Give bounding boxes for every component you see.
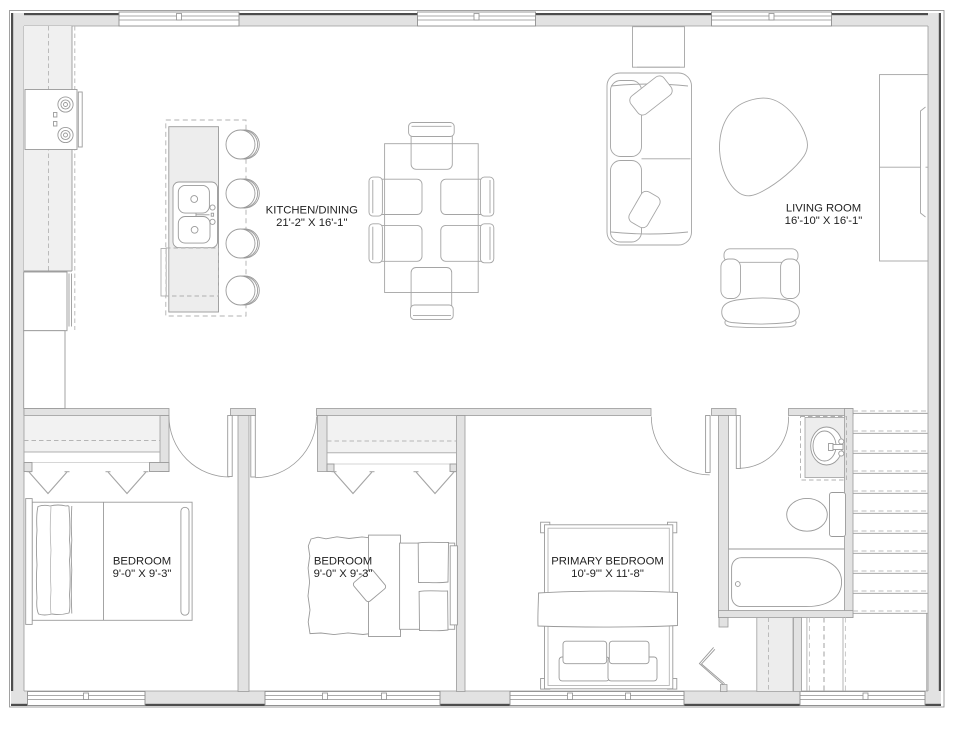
svg-text:BEDROOM: BEDROOM	[113, 556, 171, 568]
svg-text:16'-10" X 16'-1": 16'-10" X 16'-1"	[785, 215, 863, 227]
svg-text:9'-0" X 9'-3": 9'-0" X 9'-3"	[113, 568, 172, 580]
svg-text:KITCHEN/DINING: KITCHEN/DINING	[266, 204, 358, 216]
svg-text:9'-0" X 9'-3": 9'-0" X 9'-3"	[314, 568, 373, 580]
svg-text:BEDROOM: BEDROOM	[314, 556, 372, 568]
svg-text:21'-2" X 16'-1": 21'-2" X 16'-1"	[276, 217, 347, 229]
svg-text:LIVING ROOM: LIVING ROOM	[786, 203, 861, 215]
svg-text:10'-9"' X 11'-8": 10'-9"' X 11'-8"	[571, 568, 644, 580]
svg-text:PRIMARY BEDROOM: PRIMARY BEDROOM	[551, 556, 664, 568]
